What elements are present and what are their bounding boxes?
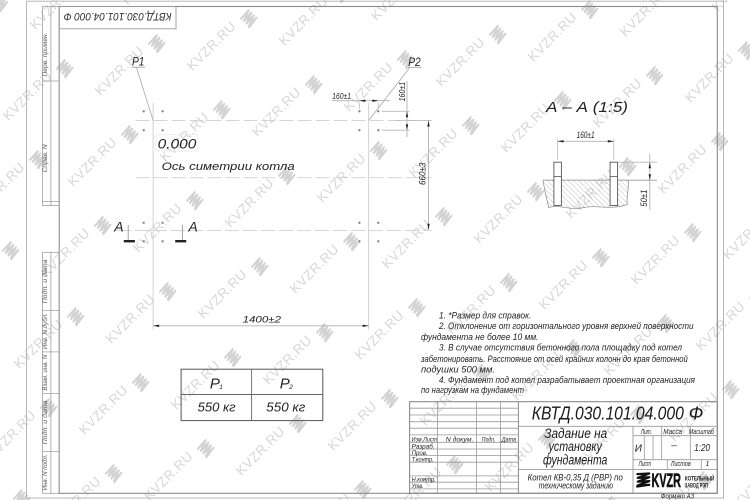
svg-text:по нагрузкам на фундамент: по нагрузкам на фундамент [421, 385, 524, 396]
svg-text:Лит.: Лит. [640, 429, 652, 436]
svg-text:KVZR.RU: KVZR.RU [195, 266, 250, 321]
svg-text:Справ. N: Справ. N [42, 144, 49, 172]
svg-text:Масштаб: Масштаб [689, 428, 715, 436]
svg-text:550 кг: 550 кг [266, 400, 306, 415]
svg-text:KVZR.RU: KVZR.RU [49, 473, 104, 500]
svg-text:ЗАВОД РЭП: ЗАВОД РЭП [685, 482, 708, 489]
svg-text:KVZR.RU: KVZR.RU [693, 298, 748, 353]
svg-text:160±1: 160±1 [577, 130, 595, 140]
svg-text:KVZR.RU: KVZR.RU [141, 448, 196, 500]
svg-text:2: 2 [288, 384, 293, 391]
svg-text:KVZR.RU: KVZR.RU [628, 232, 683, 287]
svg-text:KVZR.RU: KVZR.RU [498, 100, 553, 155]
svg-text:1:20: 1:20 [694, 443, 710, 454]
svg-text:Р1: Р1 [132, 56, 145, 68]
svg-text:3. В случае отсутствия бетонн: 3. В случае отсутствия бетонного пола пл… [439, 343, 683, 354]
svg-text:N докум.: N докум. [446, 436, 474, 444]
svg-text:2. Отклонение от горизонтальн: 2. Отклонение от горизонтального уровня … [438, 321, 694, 332]
svg-text:КВТД.030.101.04.000: КВТД.030.101.04.000 [532, 403, 685, 424]
svg-text:0.000: 0.000 [158, 136, 197, 151]
svg-text:А – А (1:5): А – А (1:5) [545, 100, 628, 116]
svg-text:Ось симетрии котла: Ось симетрии котла [162, 161, 295, 173]
svg-text:Перв. примен.: Перв. примен. [42, 32, 49, 76]
svg-text:KVZR.RU: KVZR.RU [92, 43, 147, 98]
svg-text:KVZR.RU: KVZR.RU [76, 382, 131, 437]
svg-text:Формат А3: Формат А3 [661, 491, 695, 500]
svg-text:KVZR.RU: KVZR.RU [655, 141, 710, 196]
svg-text:1: 1 [706, 461, 710, 468]
svg-text:KVZR.RU: KVZR.RU [352, 307, 407, 362]
svg-text:KVZR.RU: KVZR.RU [233, 423, 288, 478]
svg-text:KVZR.RU: KVZR.RU [731, 455, 750, 500]
svg-text:Ф: Ф [689, 403, 704, 424]
svg-text:KVZR.RU: KVZR.RU [368, 0, 423, 23]
svg-text:KVZR.RU: KVZR.RU [709, 0, 750, 14]
svg-text:KVZR.RU: KVZR.RU [525, 9, 580, 64]
svg-text:160±1: 160±1 [397, 82, 407, 102]
svg-text:KVZR: KVZR [652, 471, 682, 492]
svg-text:50±1: 50±1 [639, 190, 649, 207]
svg-text:И: И [635, 443, 643, 454]
svg-text:KVZR.RU: KVZR.RU [471, 191, 526, 246]
svg-text:660±3: 660±3 [418, 163, 428, 185]
svg-text:KVZR.RU: KVZR.RU [682, 50, 737, 105]
svg-text:Подп. и дата: Подп. и дата [41, 400, 49, 444]
svg-text:KVZR.RU: KVZR.RU [11, 316, 66, 371]
svg-text:KVZR.RU: KVZR.RU [276, 0, 331, 48]
svg-text:160±1: 160±1 [332, 91, 351, 101]
svg-text:установку: установку [548, 439, 603, 454]
svg-text:Подп. и дата: Подп. и дата [41, 259, 49, 303]
svg-text:KVZR.RU: KVZR.RU [406, 125, 461, 180]
svg-text:А: А [187, 218, 197, 234]
svg-text:KVZR.RU: KVZR.RU [325, 398, 380, 453]
svg-text:подушки 500 мм.: подушки 500 мм. [421, 364, 495, 375]
svg-text:Утв.: Утв. [411, 483, 424, 490]
svg-text:фундамента: фундамента [543, 453, 608, 468]
svg-text:KVZR.RU: KVZR.RU [0, 159, 28, 214]
svg-text:KVZR.RU: KVZR.RU [0, 250, 1, 305]
svg-text:Масса: Масса [663, 429, 682, 436]
svg-text:KVZR.RU: KVZR.RU [433, 34, 488, 89]
svg-text:КВТД.030.101.04.000 Ф: КВТД.030.101.04.000 Ф [63, 10, 171, 22]
svg-text:–: – [670, 440, 677, 451]
svg-text:Инв. N дубл.: Инв. N дубл. [41, 313, 49, 349]
svg-text:550 кг: 550 кг [198, 400, 237, 415]
svg-text:Лист: Лист [638, 461, 651, 468]
svg-text:KVZR.RU: KVZR.RU [617, 0, 672, 39]
svg-text:KVZR.RU: KVZR.RU [249, 84, 304, 139]
svg-text:KVZR.RU: KVZR.RU [720, 207, 750, 262]
svg-text:Листов: Листов [670, 461, 691, 468]
svg-text:Взам. инв. N: Взам. инв. N [42, 355, 49, 391]
svg-text:KVZR.RU: KVZR.RU [65, 134, 120, 189]
svg-text:Т.контр.: Т.контр. [412, 457, 434, 464]
svg-text:Дата: Дата [501, 437, 516, 444]
svg-text:KVZR.RU: KVZR.RU [103, 291, 158, 346]
svg-text:техническому заданию: техническому заданию [539, 481, 613, 491]
svg-text:KVZR.RU: KVZR.RU [379, 216, 434, 271]
svg-text:Подп.: Подп. [482, 436, 496, 444]
svg-text:А: А [113, 218, 123, 234]
svg-text:1. *Размер для справок.: 1. *Размер для справок. [439, 310, 531, 321]
svg-text:KVZR.RU: KVZR.RU [536, 257, 591, 312]
svg-text:Инв. N подл.: Инв. N подл. [41, 454, 49, 490]
svg-text:KVZR.RU: KVZR.RU [222, 175, 277, 230]
svg-text:KVZR.RU: KVZR.RU [482, 439, 537, 494]
svg-text:1400±2: 1400±2 [243, 314, 282, 325]
svg-text:KVZR.RU: KVZR.RU [287, 241, 342, 296]
svg-text:KVZR.RU: KVZR.RU [130, 200, 185, 255]
svg-text:КОТЕЛЬНЫЙ: КОТЕЛЬНЫЙ [685, 474, 715, 483]
svg-text:KVZR.RU: KVZR.RU [184, 18, 239, 73]
svg-text:KVZR.RU: KVZR.RU [0, 407, 39, 462]
svg-text:1: 1 [219, 384, 223, 391]
svg-text:фундамента не более 10 мм.: фундамента не более 10 мм. [421, 332, 539, 343]
